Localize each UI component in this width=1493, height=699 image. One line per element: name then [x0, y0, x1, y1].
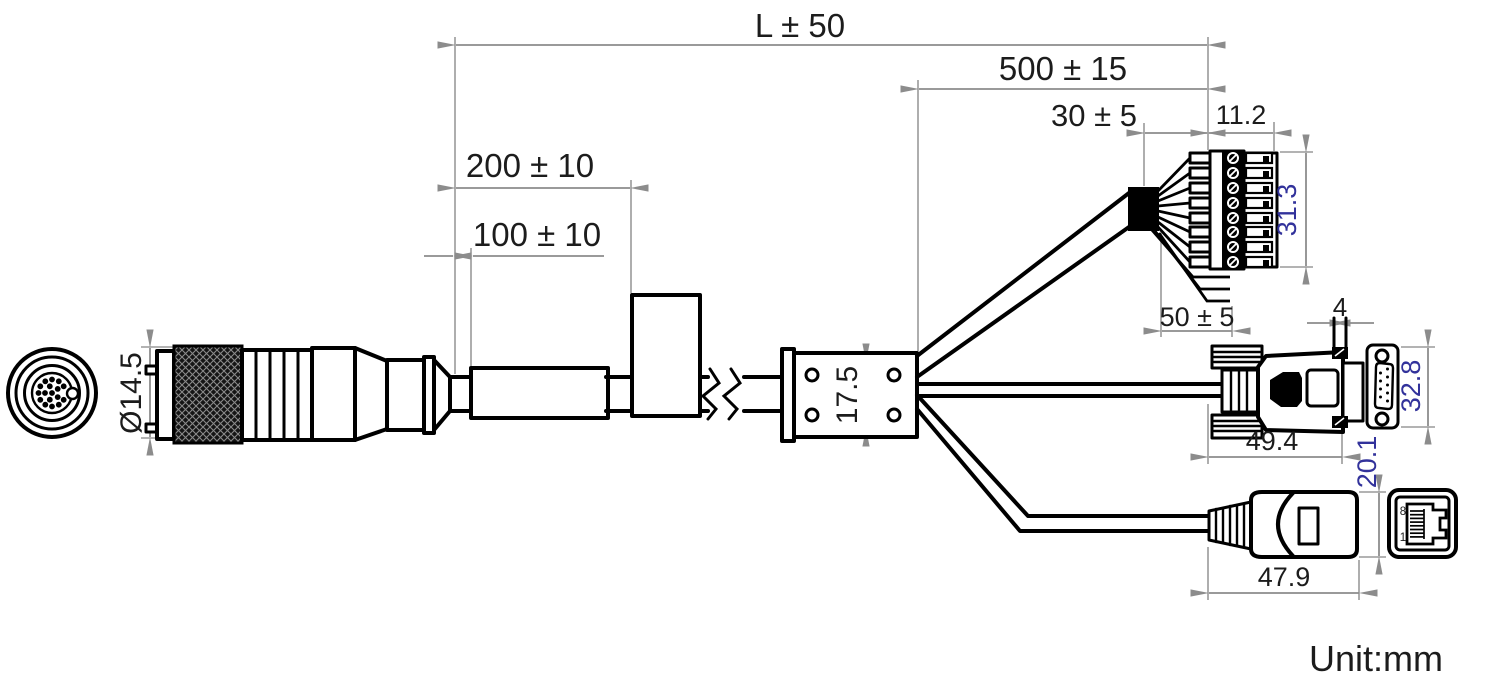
- rj45-pin8-label: 8: [1400, 506, 1406, 518]
- dim-ferrite-position: 200 ± 10: [466, 147, 594, 184]
- cable-marker-sleeve: [471, 368, 608, 418]
- main-cable: [450, 295, 783, 419]
- dim-m12-diameter: Ø14.5: [115, 352, 148, 434]
- dsub-hood-window: [1307, 370, 1338, 406]
- ferrite-core: [632, 295, 700, 416]
- unit-note: Unit:mm: [1309, 638, 1443, 679]
- dim-terminal-height: 31.3: [1272, 184, 1302, 237]
- dim-rj45-length: 47.9: [1258, 562, 1311, 592]
- cable-breakout-boot: [1128, 187, 1159, 231]
- dim-branch-length: 500 ± 15: [999, 50, 1127, 87]
- dim-terminal-width: 11.2: [1216, 100, 1267, 130]
- dim-overall-length: L ± 50: [755, 7, 845, 44]
- cable-assembly-drawing: 8 1 L ± 50 500 ± 15 30 ± 5 11.2 200 ± 10…: [0, 0, 1493, 699]
- rj45-connector-side-view: [1209, 492, 1357, 557]
- dsub-connector-side-view: [1212, 318, 1363, 438]
- rj45-pin1-label: 1: [1400, 532, 1406, 544]
- terminal-block-branch: [1128, 151, 1277, 301]
- dim-marker-position: 100 ± 10: [473, 216, 601, 253]
- dsub-shell: [1343, 363, 1363, 421]
- branch-cables: [917, 193, 1223, 531]
- keyway-notch: [67, 388, 78, 399]
- m12-connector-side-view: [146, 346, 450, 443]
- wire-ferrules: [1190, 153, 1210, 267]
- terminal-block-connector: [1210, 151, 1277, 269]
- dim-junction-height: 17.5: [831, 366, 864, 424]
- breakout-wires: [1158, 158, 1190, 262]
- rj45-body-window: [1299, 508, 1318, 544]
- drawing-canvas: 8 1 L ± 50 500 ± 15 30 ± 5 11.2 200 ± 10…: [0, 0, 1493, 699]
- knurled-coupling-nut: [174, 346, 242, 443]
- dim-jackscrew-width: 4: [1333, 292, 1347, 322]
- m12-pins: [36, 377, 67, 410]
- rj45-connector-front-view: 8 1: [1389, 490, 1456, 557]
- dim-dsub-length: 49.4: [1246, 426, 1299, 456]
- dim-dsub-front-height: 32.8: [1396, 360, 1426, 413]
- dim-jacket-strip: 30 ± 5: [1051, 98, 1137, 133]
- dsub-connector-front-view: [1367, 345, 1398, 428]
- dimension-labels: L ± 50 500 ± 15 30 ± 5 11.2 200 ± 10 100…: [115, 7, 1443, 679]
- m12-connector-front-view: [8, 349, 96, 437]
- dsub-hood-grip: [1270, 372, 1302, 407]
- dim-spare-wire-length: 50 ± 5: [1160, 302, 1235, 332]
- dim-rj45-height: 20.1: [1352, 436, 1382, 489]
- dsub-d-shell: [1375, 363, 1393, 409]
- rj45-jack-outline: [1407, 504, 1446, 544]
